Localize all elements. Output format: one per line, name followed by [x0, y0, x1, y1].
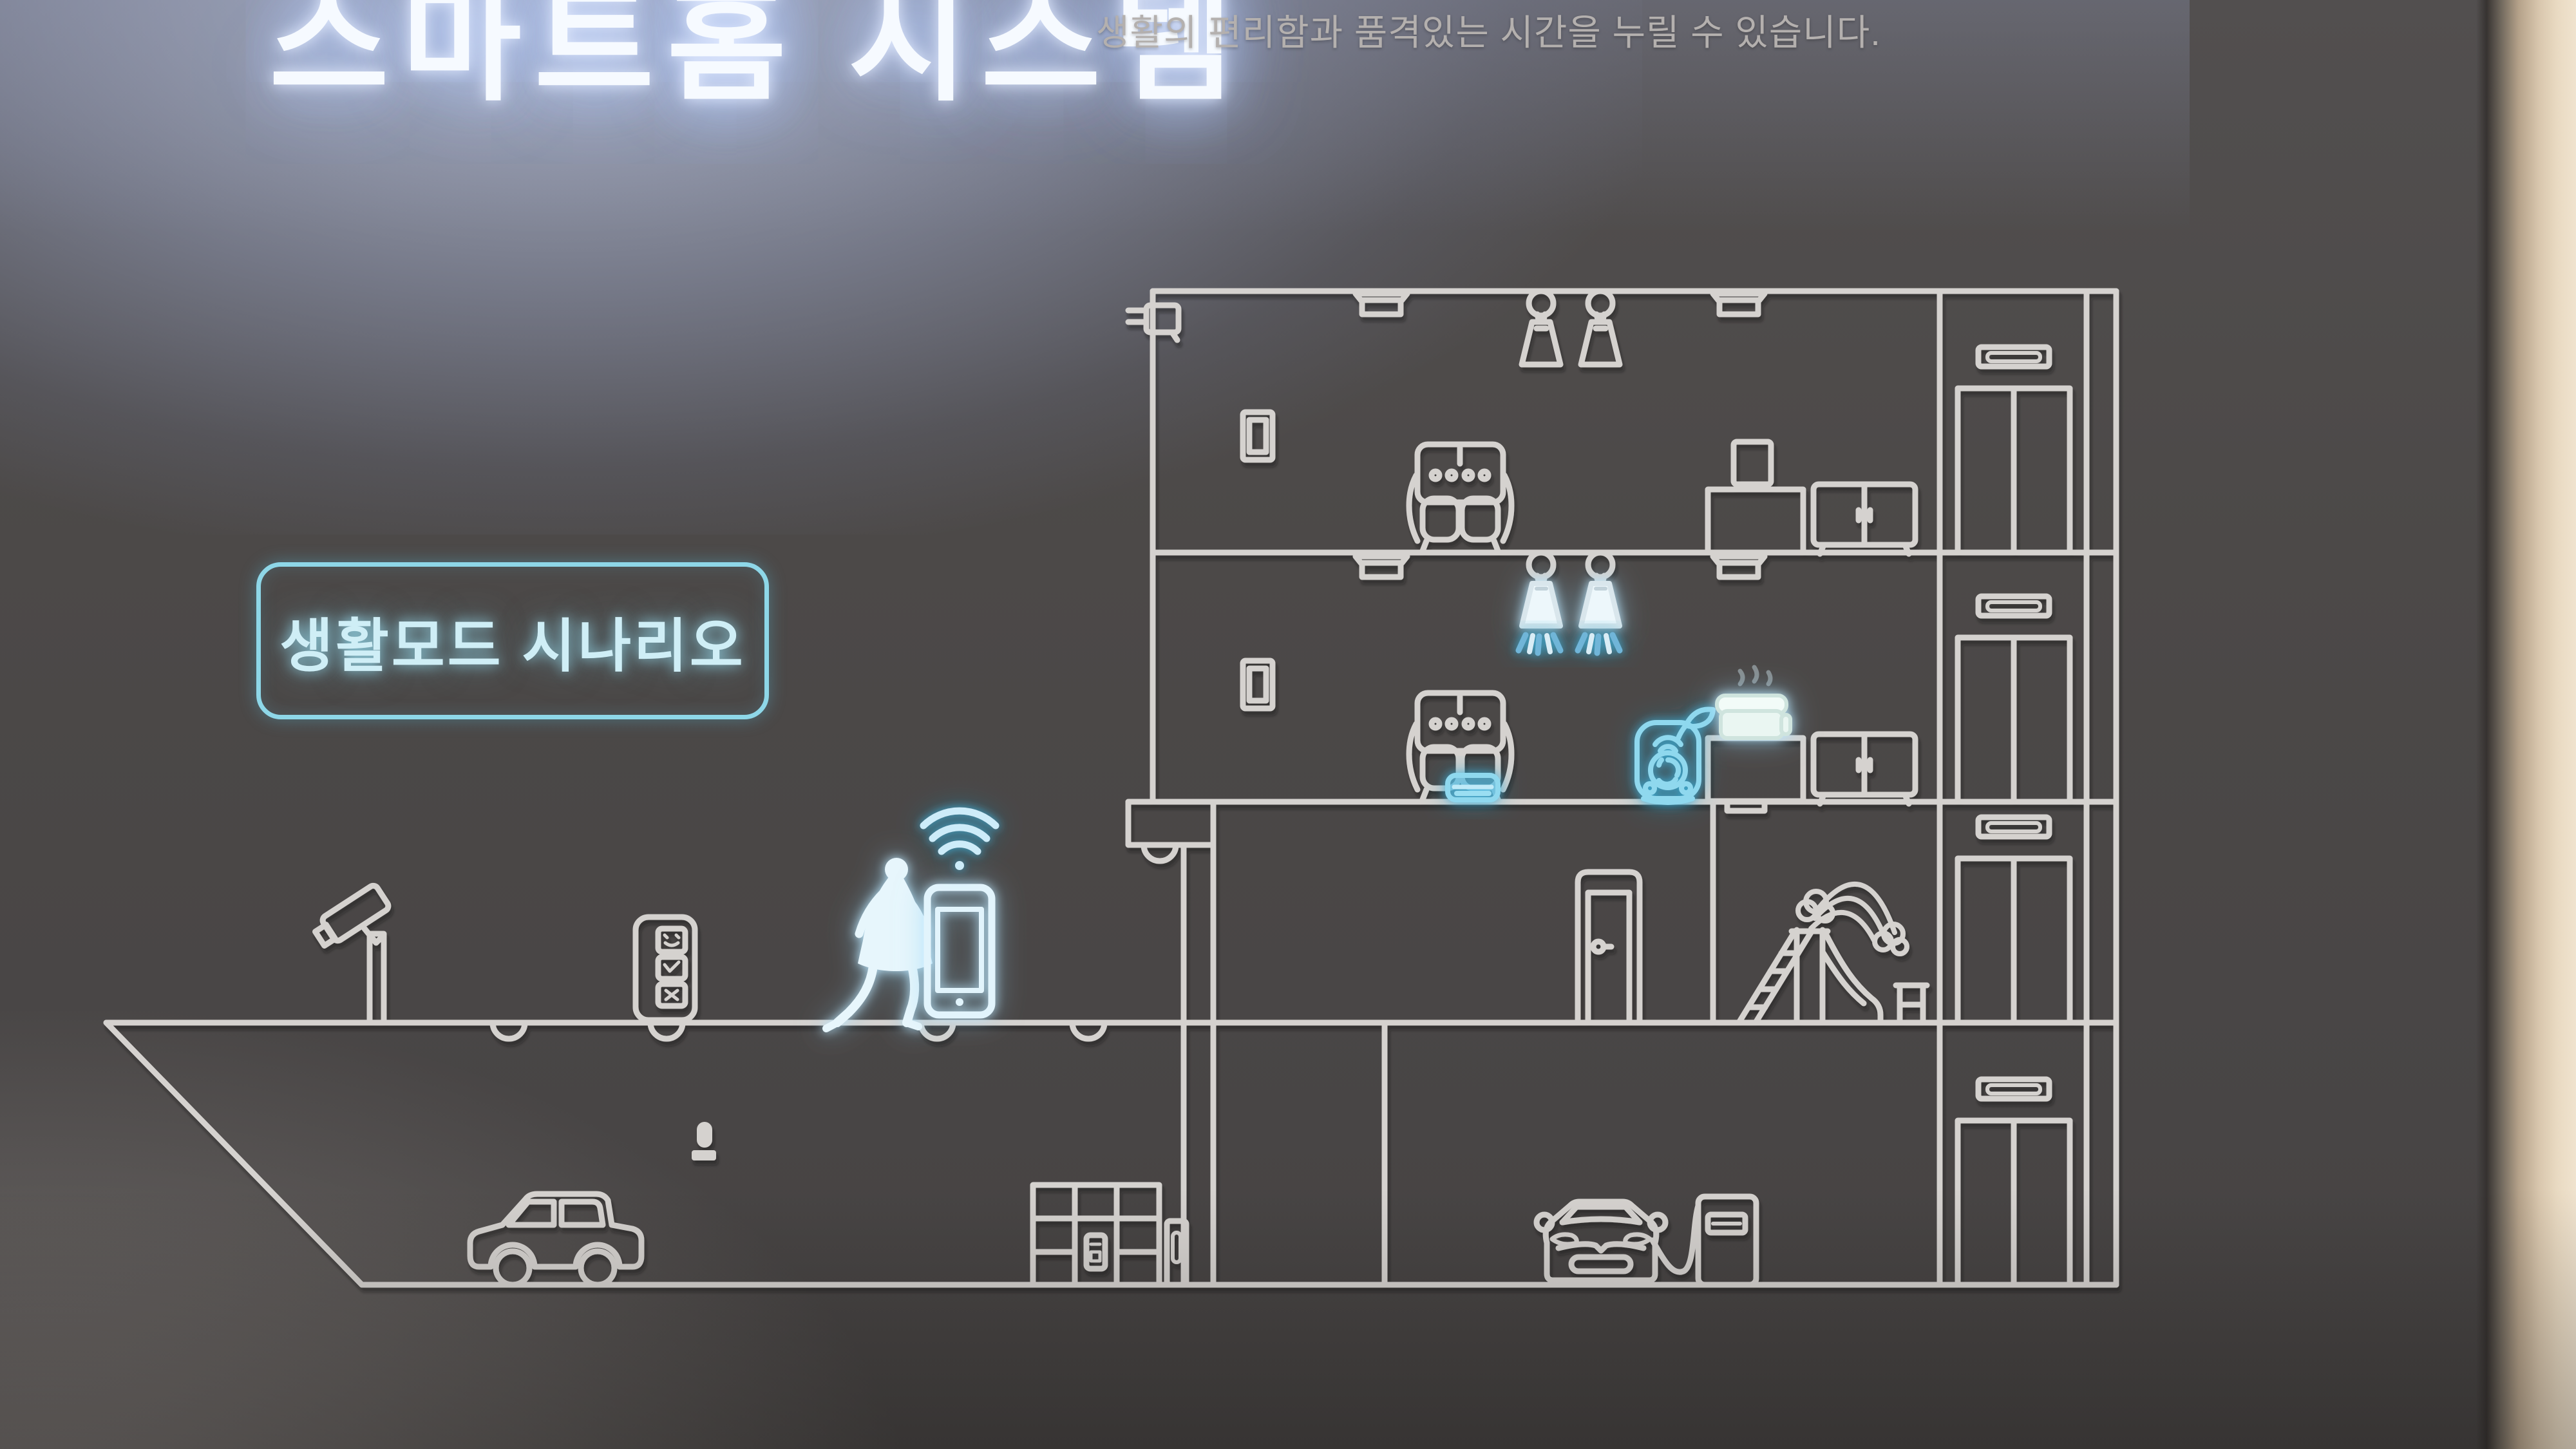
- pendant-light-on-icon: [1522, 583, 1620, 626]
- floor-1: [1578, 872, 1927, 1023]
- parking-kiosk-icon: [636, 917, 695, 1020]
- parcel-locker-icon: [1033, 1185, 1186, 1285]
- console-table-icon: [1708, 489, 1803, 553]
- pendant-light-rays: [1519, 635, 1620, 653]
- building-diagram: [0, 0, 2576, 1449]
- tv-icon: [1734, 442, 1771, 488]
- rice-cooker-icon: [1717, 696, 1790, 738]
- playground-slide-icon: [1739, 930, 1880, 1023]
- smartphone-icon: [927, 887, 992, 1015]
- ceiling-vent-icon: [1356, 294, 1407, 314]
- building-structure: [1128, 291, 2116, 1285]
- bench-icon: [1896, 985, 1927, 1023]
- ceiling-vent-icon: [1713, 556, 1765, 577]
- exhibit-board: 스마트홈 시스템 생활의 편리함과 품격있는 시간을 누릴 수 있습니다. 생활…: [0, 0, 2576, 1449]
- elevator-doors-icon: [1958, 347, 2070, 553]
- canopy-icon: [1128, 802, 1213, 845]
- cctv-camera-icon: [311, 884, 390, 1023]
- ramp-line: [106, 1023, 362, 1285]
- bollard-icon: [692, 1122, 716, 1160]
- floor-2: [1243, 553, 1915, 804]
- walking-person-icon: [826, 858, 933, 1028]
- basement: [470, 1122, 1756, 1285]
- ev-charger-icon: [1653, 1197, 1756, 1285]
- door-icon: [1578, 872, 1640, 1023]
- car-side-icon: [470, 1194, 641, 1285]
- pendant-light-icon: [1522, 322, 1560, 365]
- rainbow-icon: [1798, 884, 1907, 954]
- pendant-light-icon: [1581, 322, 1620, 365]
- exterior: [311, 884, 695, 1023]
- elevator-doors-icon: [1958, 1079, 2070, 1285]
- wifi-signal-icon: [923, 811, 996, 870]
- pendant-light-icon: [1588, 291, 1613, 322]
- picture-frame-icon: [1243, 412, 1273, 460]
- cabinet-icon: [1814, 484, 1915, 554]
- cabinet-icon: [1814, 734, 1915, 804]
- elevator-doors-icon: [1958, 817, 2070, 1023]
- console-table-icon: [1708, 738, 1803, 801]
- pendant-light-on-icon: [1588, 553, 1613, 583]
- robot-vacuum-icon: [1448, 775, 1498, 800]
- floor-3: [1243, 291, 1915, 554]
- pendant-light-on-icon: [1529, 553, 1553, 583]
- ceiling-vent-icon: [1356, 556, 1407, 577]
- ev-car-front-icon: [1537, 1202, 1665, 1285]
- air-purifier-icon: [1637, 710, 1713, 803]
- steam-icon: [1740, 667, 1770, 684]
- elevator-doors-icon: [1958, 596, 2070, 802]
- pendant-light-icon: [1529, 291, 1553, 322]
- ground-line: [106, 1023, 2116, 1285]
- ceiling-vent-icon: [1713, 294, 1765, 314]
- sofa-icon: [1409, 444, 1511, 553]
- picture-frame-icon: [1243, 661, 1273, 708]
